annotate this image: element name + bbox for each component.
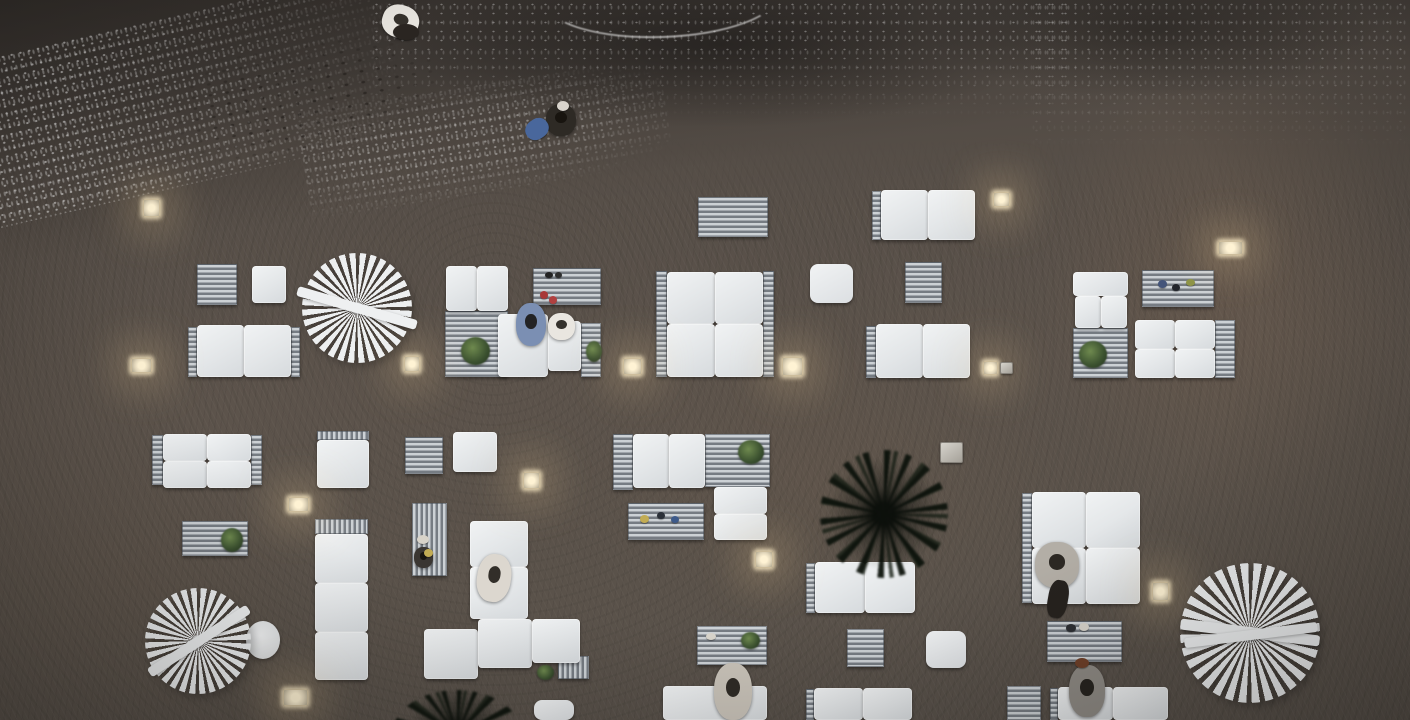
beach-photo [0,0,1410,720]
daybed-cushion [315,534,368,583]
beach-lamp [993,192,1010,207]
round-side-table [246,621,280,659]
sofa-cushion [1135,320,1175,349]
sofa-cushion [1073,272,1128,296]
white-cube-lamp [940,442,963,463]
sofa-cushion [714,487,767,514]
daybed-cushion [667,324,715,377]
palm-tree [392,690,522,720]
table-plate [417,535,429,544]
pouf-cushion [453,432,497,472]
beach-lamp [623,358,642,375]
table-item [640,515,649,523]
lounger-fringe [291,327,300,377]
potted-plant [221,528,243,552]
table-item [1186,279,1195,286]
table-item [1066,624,1076,632]
pouf-cushion [252,266,286,303]
daybed-fringe [1022,493,1032,603]
person-seated-hat [548,313,575,340]
slatted-base [705,434,770,487]
beach-lamp [143,199,160,217]
daybed-cushion [814,688,863,720]
table-plate [706,633,716,640]
beach-lamp [983,361,998,375]
daybed-cushion [715,272,763,324]
red-drink [540,291,548,299]
lounger-fringe [251,435,262,485]
daybed-cushion [876,324,923,378]
beach-lamp [755,551,773,568]
sofa-cushion [1101,296,1127,328]
potted-plant [461,337,490,365]
potted-plant [537,665,554,680]
table-item [1158,280,1167,288]
sofa-cushion [478,619,532,668]
sofa-cushion [1175,320,1215,349]
palm-tree [820,450,948,578]
sofa-cushion [714,514,767,540]
daybed-cushion [317,440,369,488]
sofa-cushion [532,619,580,663]
lounger-cushion [197,325,244,377]
daybed-cushion [1032,492,1086,548]
slatted-platform [1007,686,1041,720]
daybed-cushion [863,688,912,720]
daybed-cushion [928,190,975,240]
beach-lamp [283,689,308,706]
potted-plant [741,632,760,649]
white-pouf [534,700,574,720]
person-shadow [393,24,419,40]
lounger-cushion [163,434,207,461]
daybed-fringe [806,563,815,613]
daybed-cushion [1086,492,1140,548]
beach-lamp [131,358,152,373]
potted-plant [738,440,764,464]
lounger-cushion [163,461,207,488]
lounger-fringe [188,327,197,377]
beach-lamp [782,357,803,376]
daybed-fringe [872,191,881,240]
daybed-cushion [315,632,368,680]
daybed-fringe [763,271,774,377]
daybed-cushion [1113,687,1168,720]
slatted-table [533,268,601,305]
daybed-fringe [806,689,814,720]
beach-lamp [1000,362,1013,374]
beach-lamp [288,497,309,512]
daybed-cushion [881,190,928,240]
daybed-cushion [315,583,368,632]
table-plate [1079,623,1089,631]
sofa-cushion [1075,296,1101,328]
white-pouf [810,264,853,303]
daybed-fringe [317,431,369,440]
beach-lamp [404,356,420,372]
red-drink [549,296,557,304]
lounger-cushion [207,434,251,461]
slatted-platform [405,437,443,474]
slatted-platform [197,264,237,305]
lounger-fringe [152,435,163,485]
sofa-cushion [424,629,478,679]
table-item [545,272,553,278]
person-on-daybed [1069,665,1105,717]
table-item [657,512,665,519]
beach-lamp [1152,582,1169,601]
white-cap [557,101,569,111]
sofa-cushion [446,266,477,311]
lounger-cushion [244,325,291,377]
slatted-base [1215,320,1235,378]
sofa-cushion [633,434,669,488]
slatted-platform [905,262,942,303]
table-item [671,516,679,523]
slatted-base [613,434,633,490]
beach-lamp [523,472,540,489]
daybed-fringe [866,326,876,378]
potted-plant [1079,341,1107,368]
daybed-fringe [656,271,667,377]
table-item [555,272,562,278]
potted-plant [586,341,602,362]
sofa-cushion [477,266,508,311]
shoes [1075,658,1089,668]
slatted-platform [847,629,884,667]
sofa-cushion [1175,349,1215,378]
table-item [1172,284,1180,291]
person-seated-blue [516,303,546,346]
lounger-cushion [207,461,251,488]
white-pouf [926,631,966,668]
person-with-towel [714,663,752,720]
daybed-cushion [923,324,970,378]
sofa-cushion [669,434,705,488]
slatted-table [628,503,704,540]
daybed-cushion [715,324,763,377]
daybed-fringe [315,519,368,534]
sofa-cushion [1135,349,1175,378]
furniture-layer [0,0,1410,720]
slatted-lounger [698,197,768,237]
table-item [424,549,433,557]
daybed-cushion [667,272,715,324]
daybed-fringe [1050,688,1058,720]
daybed-cushion [1086,548,1140,604]
beach-lamp [1218,241,1243,255]
